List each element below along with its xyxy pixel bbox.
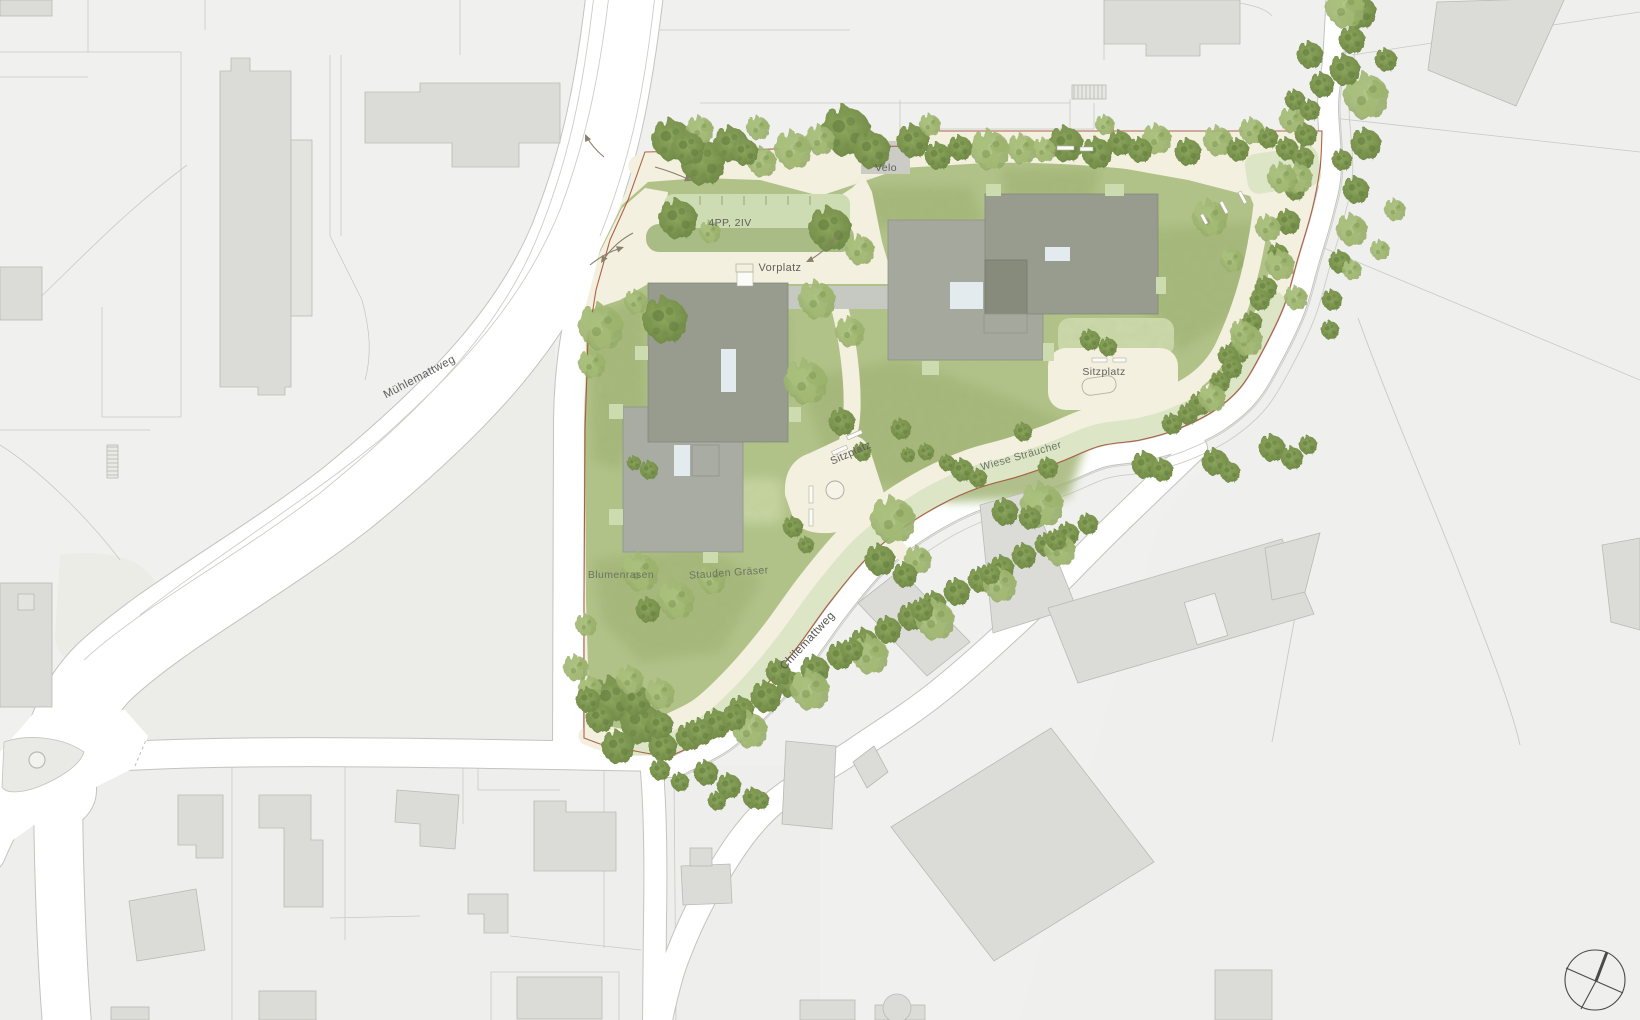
svg-text:Velo: Velo — [875, 162, 897, 174]
svg-text:Sitzplatz: Sitzplatz — [1082, 366, 1125, 378]
svg-text:Vorplatz: Vorplatz — [759, 262, 802, 274]
svg-text:4PP, 2IV: 4PP, 2IV — [708, 217, 751, 229]
svg-text:Blumenrasen: Blumenrasen — [588, 569, 654, 581]
